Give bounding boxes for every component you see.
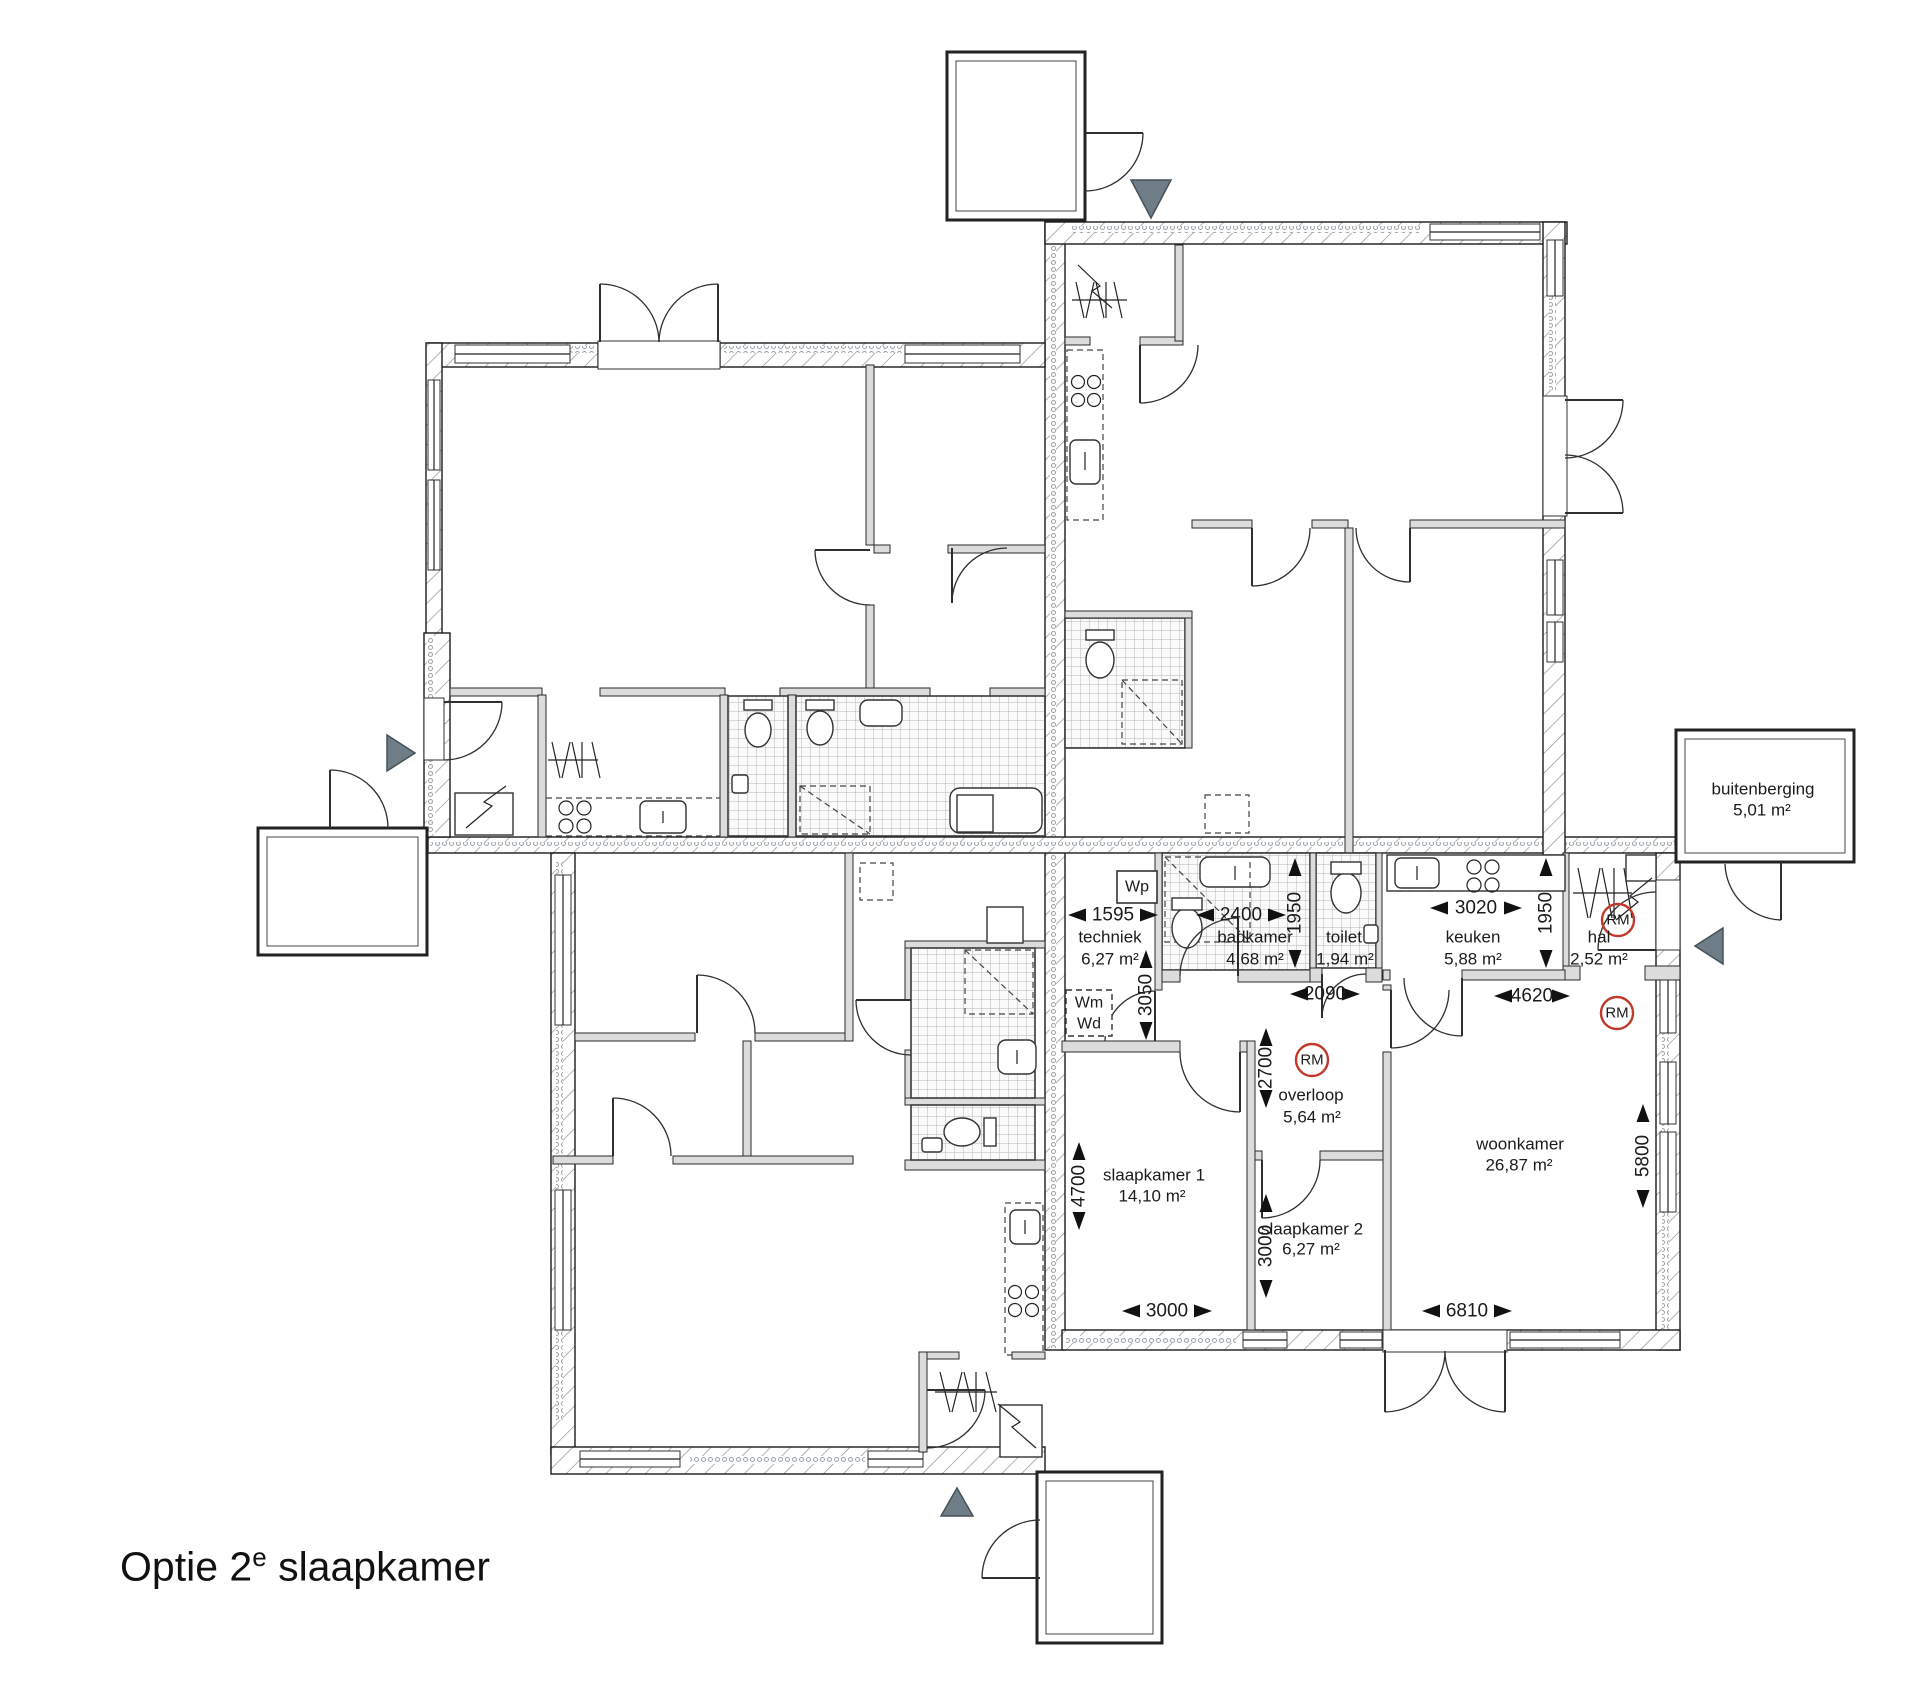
room-area-overloop: 5,64 m² <box>1283 1108 1341 1127</box>
entrance-marker-top-icon <box>1131 180 1171 218</box>
coat-rack-icon <box>1072 282 1127 318</box>
room-area-woonkamer: 26,87 m² <box>1485 1156 1552 1175</box>
entrance-marker-left-icon <box>387 735 415 771</box>
wd-label: Wd <box>1077 1016 1101 1033</box>
svg-text:3020: 3020 <box>1455 898 1497 919</box>
svg-text:3000: 3000 <box>1146 1301 1188 1322</box>
unit-top-right <box>1065 245 1623 853</box>
structural-walls <box>424 188 1680 1474</box>
dimension-entry-width: 6810 <box>1422 1301 1512 1322</box>
wp-label: Wp <box>1125 879 1149 896</box>
buitenberging: buitenberging 5,01 m² <box>1676 730 1854 920</box>
room-label-badkamer: badkamer <box>1217 928 1293 947</box>
svg-text:RM: RM <box>1605 1005 1628 1022</box>
wp-box: Wp <box>1117 871 1157 903</box>
dimension-slaapkamer2-depth: 3000 <box>1256 1194 1277 1298</box>
unit-bottom-left <box>553 853 1045 1457</box>
svg-text:RM: RM <box>1606 912 1629 929</box>
dimension-overloop-width: 2090 <box>1290 984 1360 1005</box>
wm-label: Wm <box>1075 995 1103 1012</box>
unit-bottom-right: Wp Wm Wd RM RM RM techniek 6,27 m² badka… <box>1062 853 1680 1412</box>
entrance-marker-right-icon <box>1695 928 1723 964</box>
svg-text:1595: 1595 <box>1092 905 1134 926</box>
svg-text:4700: 4700 <box>1069 1165 1090 1207</box>
room-label-hal: hal <box>1588 928 1611 947</box>
storage-bottom <box>982 1472 1162 1643</box>
dimension-woonkamer-width: 4620 <box>1494 986 1570 1007</box>
wasmachine-box: Wm Wd <box>1066 990 1112 1036</box>
coat-rack-icon <box>1573 868 1632 918</box>
svg-text:6810: 6810 <box>1446 1301 1488 1322</box>
room-label-techniek: techniek <box>1078 928 1142 947</box>
svg-text:4620: 4620 <box>1511 986 1553 1007</box>
room-area-techniek: 6,27 m² <box>1081 950 1139 969</box>
dimension-keuken-width: 3020 <box>1430 898 1522 919</box>
floor-plan-canvas: buitenberging 5,01 m² <box>0 0 1928 1688</box>
floor-plan-page: buitenberging 5,01 m² <box>0 0 1928 1688</box>
room-area-badkamer: 4,68 m² <box>1226 950 1284 969</box>
door-entrance-double <box>1383 1330 1507 1412</box>
svg-text:1950: 1950 <box>1536 892 1557 934</box>
svg-text:3050: 3050 <box>1136 974 1157 1016</box>
room-label-buitenberging: buitenberging <box>1711 780 1814 799</box>
svg-text:1950: 1950 <box>1285 892 1306 934</box>
door-slaapkamer1 <box>1180 1052 1240 1112</box>
room-area-toilet: 1,94 m² <box>1316 950 1374 969</box>
svg-text:2400: 2400 <box>1220 905 1262 926</box>
svg-text:RM: RM <box>1300 1052 1323 1069</box>
rm-badge: RM <box>1601 997 1633 1029</box>
svg-text:2700: 2700 <box>1256 1047 1277 1089</box>
svg-text:3000: 3000 <box>1256 1225 1277 1267</box>
drawing-title: Optie 2e slaapkamer <box>120 1542 490 1591</box>
coat-rack-icon <box>548 742 600 778</box>
room-area-slaapkamer1: 14,10 m² <box>1118 1187 1185 1206</box>
room-area-buitenberging: 5,01 m² <box>1733 801 1791 820</box>
dimension-slaapkamer1-depth: 4700 <box>1069 1142 1090 1230</box>
room-label-overloop: overloop <box>1278 1086 1343 1105</box>
svg-text:5800: 5800 <box>1633 1135 1654 1177</box>
door-overloop-woonkamer <box>1391 978 1462 1048</box>
storage-left <box>258 770 427 955</box>
meter-arrow-icon <box>1078 265 1112 308</box>
room-label-woonkamer: woonkamer <box>1475 1135 1564 1154</box>
storage-top <box>947 52 1143 220</box>
room-label-toilet: toilet <box>1326 928 1362 947</box>
room-label-slaapkamer1: slaapkamer 1 <box>1103 1166 1205 1185</box>
room-area-hal: 2,52 m² <box>1570 950 1628 969</box>
dimension-techniek-width: 1595 <box>1068 905 1158 926</box>
entrance-marker-bottom-icon <box>941 1488 973 1516</box>
dimension-slaapkamer1-width: 3000 <box>1122 1301 1212 1322</box>
coat-rack-icon <box>935 1372 997 1412</box>
rm-badge: RM <box>1296 1044 1328 1076</box>
dimension-woonkamer-depth: 5800 <box>1633 1104 1654 1208</box>
room-area-slaapkamer2: 6,27 m² <box>1282 1240 1340 1259</box>
room-area-keuken: 5,88 m² <box>1444 950 1502 969</box>
room-label-keuken: keuken <box>1446 928 1501 947</box>
dimension-overloop-depth: 2700 <box>1256 1028 1277 1108</box>
svg-text:2090: 2090 <box>1304 984 1346 1005</box>
